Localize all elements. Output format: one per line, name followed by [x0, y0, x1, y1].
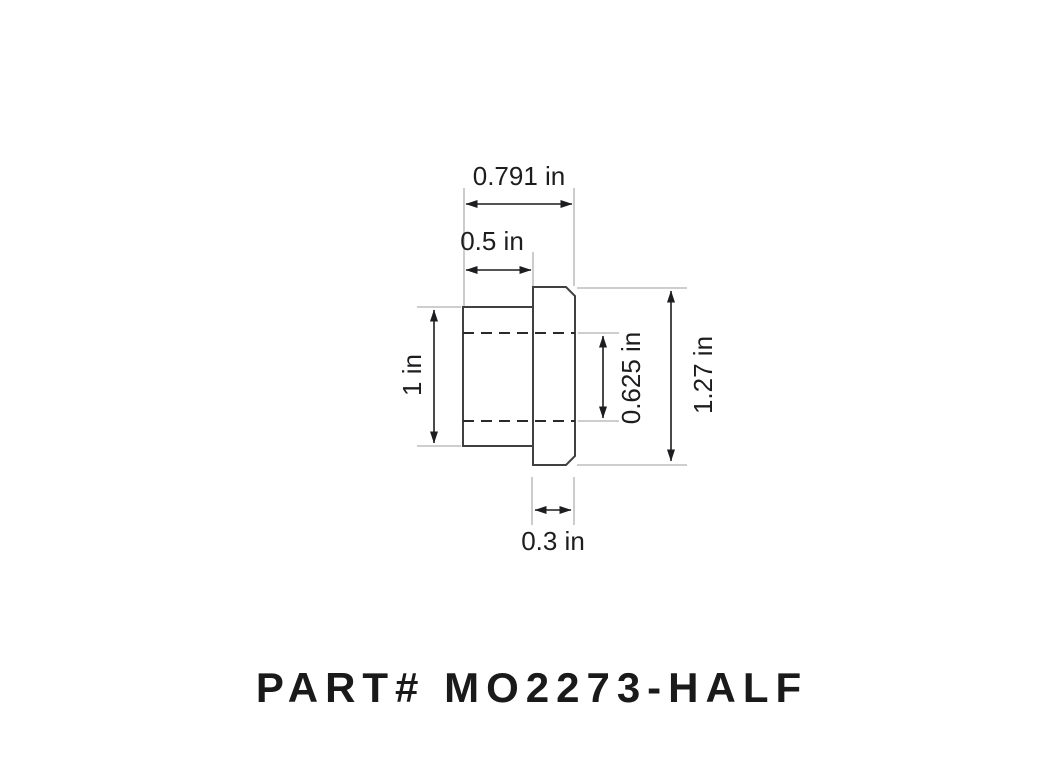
dimension-label-flange-height: 1.27 in	[688, 336, 718, 414]
dimension-label-overall-width: 0.791 in	[473, 161, 566, 191]
part-outline	[463, 287, 575, 465]
bore-hidden-lines	[463, 333, 575, 421]
dimension-label-body-height: 1 in	[397, 354, 427, 396]
drawing-sheet: 0.791 in 0.5 in 1 in 0.625 in 1.27 in 0.…	[0, 0, 1064, 768]
dimension-label-bore-height: 0.625 in	[616, 332, 646, 425]
dimension-label-flange-width: 0.3 in	[521, 526, 585, 556]
part-flange-outline	[533, 287, 575, 465]
part-number-title: PART# MO2273-HALF	[0, 664, 1064, 712]
part-body-outline	[463, 307, 533, 446]
dimension-labels: 0.791 in 0.5 in 1 in 0.625 in 1.27 in 0.…	[397, 161, 718, 556]
extension-lines	[417, 188, 687, 525]
dimension-label-body-width: 0.5 in	[460, 226, 524, 256]
technical-drawing: 0.791 in 0.5 in 1 in 0.625 in 1.27 in 0.…	[0, 0, 1064, 768]
